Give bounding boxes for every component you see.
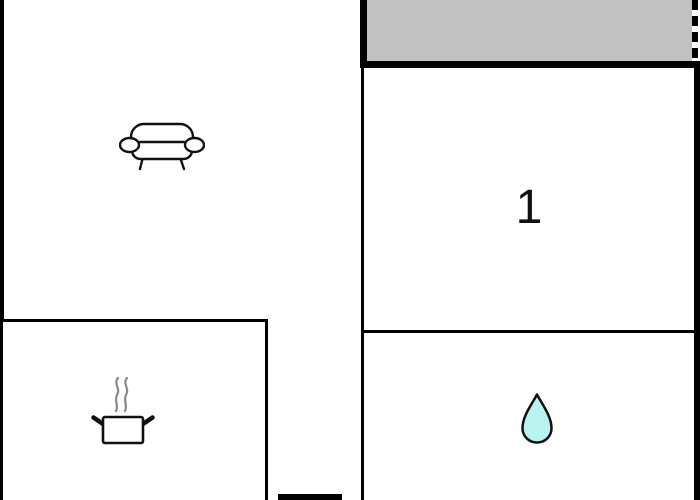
balcony-left-wall — [360, 0, 367, 66]
kitchen-right-wall — [265, 319, 268, 500]
floor-plan: 1 — [0, 0, 700, 500]
cooking-pot-icon — [90, 374, 156, 446]
bottom-door-marker — [278, 494, 342, 500]
right-outer-wall — [694, 61, 700, 500]
water-drop-icon — [518, 392, 556, 446]
balcony-bottom-wall — [360, 61, 700, 68]
sofa-icon — [119, 121, 205, 172]
room-number-label: 1 — [516, 166, 543, 232]
bedroom-1-area: 1 — [364, 68, 694, 330]
balcony-area — [367, 0, 692, 61]
balcony-open-edge — [692, 0, 698, 61]
